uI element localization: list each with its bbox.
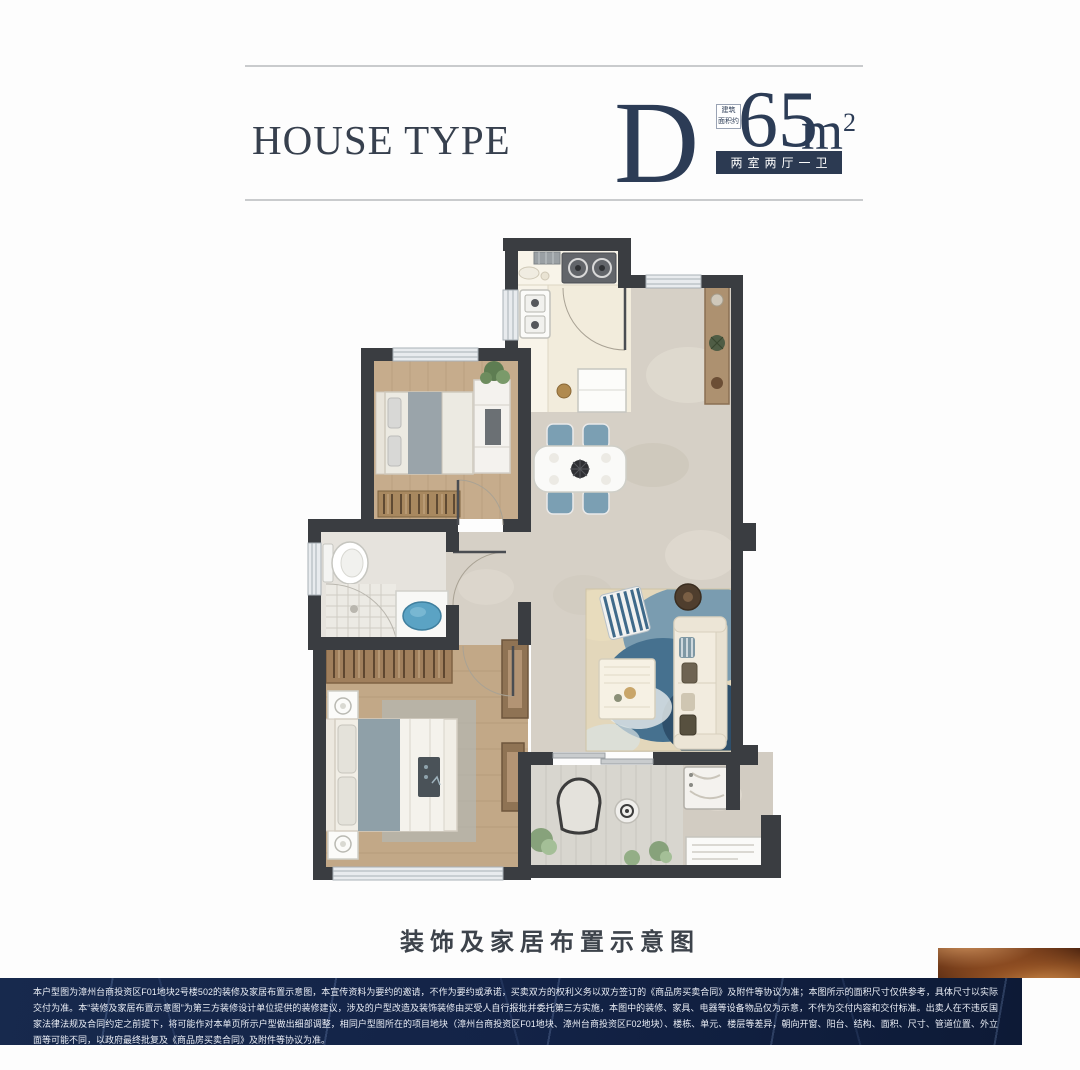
stove-icon <box>562 253 616 283</box>
shower-area <box>326 584 396 638</box>
header-divider-bottom <box>245 199 863 201</box>
fridge-icon <box>578 369 626 412</box>
header-divider-top <box>245 65 863 67</box>
toilet-icon <box>323 542 368 584</box>
area-note-line2: 面积约 <box>717 117 740 128</box>
living-window <box>646 275 701 288</box>
master-window <box>333 867 503 880</box>
master-nightstand-top <box>328 691 358 721</box>
dining-table <box>534 446 626 492</box>
plan-caption: 装饰及家居布置示意图 <box>290 922 810 957</box>
coffee-table <box>599 659 655 719</box>
bedroom2-dresser <box>378 491 460 517</box>
balcony-chair <box>558 779 600 833</box>
bathroom-vanity <box>396 591 448 641</box>
room-count-badge: 两室两厅一卫 <box>716 151 842 174</box>
area-note-line1: 建筑 <box>717 106 740 117</box>
disclaimer-text: 本户型图为漳州台商投资区F01地块2号楼502的装修及家居布置示意图，本宣传资料… <box>33 984 998 1048</box>
master-wardrobe <box>326 645 452 683</box>
house-type-letter: D <box>614 84 699 202</box>
master-nightstand-bottom <box>328 829 358 859</box>
sideboard <box>705 286 729 404</box>
area-unit-superscript: 2 <box>843 108 856 137</box>
kitchen-bowl <box>557 384 571 398</box>
balcony-door-sliding <box>553 753 653 764</box>
kitchen-window <box>503 290 518 340</box>
side-table-round <box>675 584 701 610</box>
kitchen-utensil-rack <box>534 252 560 264</box>
floorplan <box>300 233 795 895</box>
bedroom2-window <box>393 348 478 361</box>
balcony-table <box>615 799 639 823</box>
bedroom2-bed <box>376 392 473 474</box>
footer-disclaimer-band: 本户型图为漳州台商投资区F01地块2号楼502的装修及家居布置示意图，本宣传资料… <box>0 978 1022 1045</box>
copper-decor-image <box>938 948 1080 978</box>
bathroom-window <box>308 543 321 595</box>
washing-machine <box>684 767 728 809</box>
area-unit: m2 <box>801 104 856 158</box>
bedroom2-wardrobe <box>474 380 510 473</box>
entry-mat <box>686 837 762 867</box>
page: HOUSE TYPE D 建筑 面积约 65 m2 两室两厅一卫 <box>0 0 1080 1070</box>
kitchen-sink <box>520 290 550 338</box>
sofa <box>674 617 727 749</box>
page-title: HOUSE TYPE <box>252 120 511 161</box>
master-bed <box>325 719 457 831</box>
